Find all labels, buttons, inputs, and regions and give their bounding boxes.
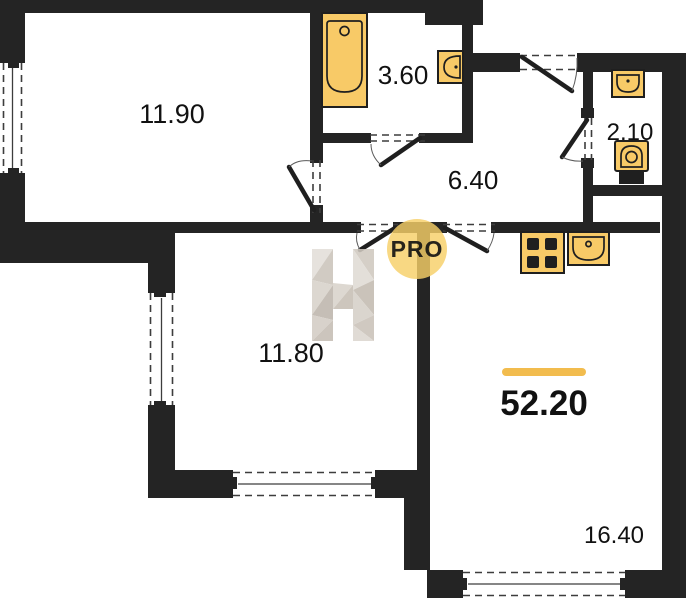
label-area-room1180: 11.80 (258, 338, 324, 368)
wc-sink-icon (612, 70, 644, 97)
label-area-hallway: 6.40 (448, 165, 499, 195)
total-area-accent-line (502, 368, 586, 376)
kitchen-sink-icon (568, 232, 609, 265)
bathtub-icon (322, 13, 367, 107)
label-area-living: 16.40 (584, 522, 644, 549)
watermark-pro-text: PRO (391, 236, 444, 262)
bath-sink-icon (438, 51, 463, 83)
toilet-icon (615, 141, 648, 184)
label-total-area: 52.20 (500, 384, 588, 423)
floor-plan-svg: PRO 11.90 3.60 6.40 2.10 11.80 16.40 52.… (0, 0, 686, 600)
floor-plan: PRO 11.90 3.60 6.40 2.10 11.80 16.40 52.… (0, 0, 686, 600)
label-area-bathroom: 3.60 (378, 60, 429, 90)
label-area-wc: 2.10 (607, 119, 654, 146)
label-area-bedroom: 11.90 (139, 99, 205, 129)
stove-icon (521, 232, 564, 273)
